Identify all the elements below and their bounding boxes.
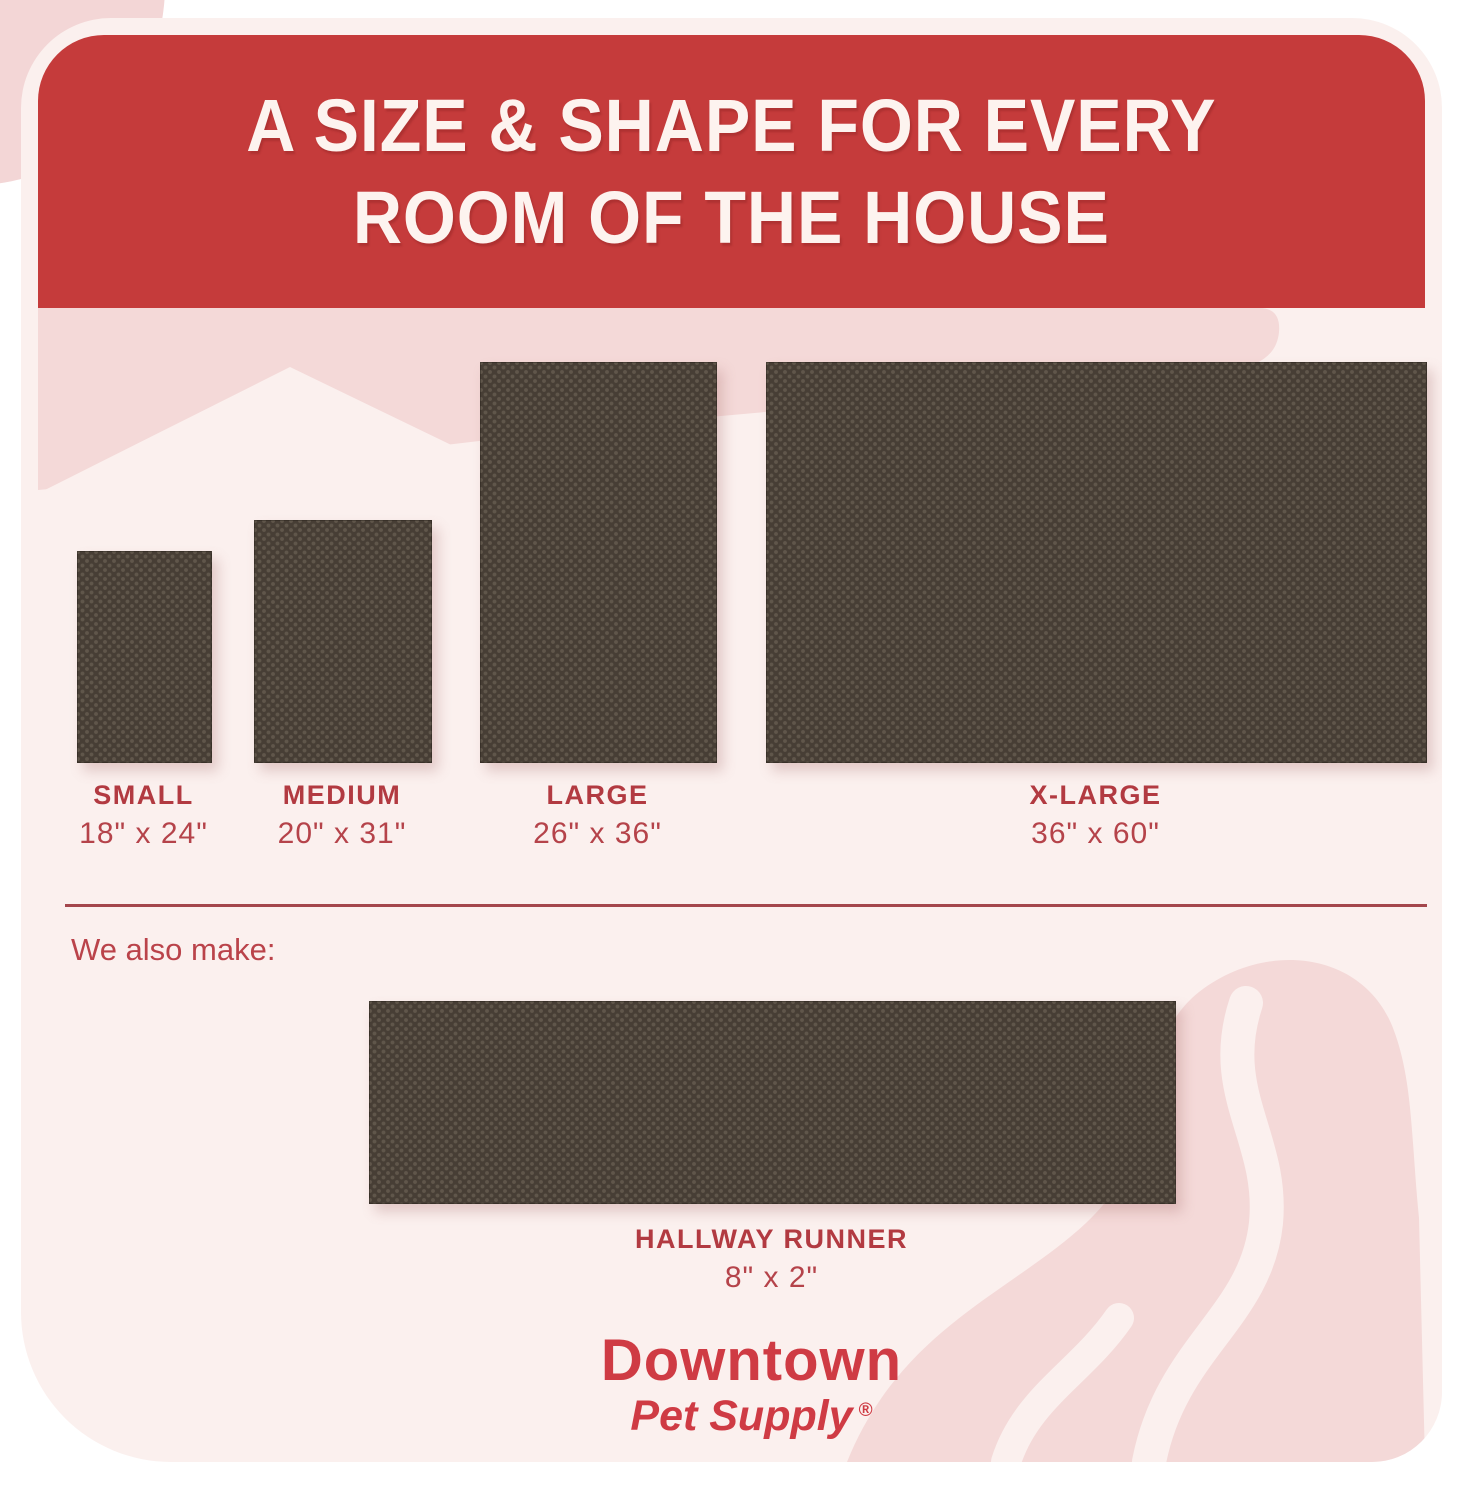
size-dim-large: 26" x 36" <box>460 817 735 851</box>
brand-logo-name: Downtown <box>601 1332 902 1390</box>
infographic-canvas: A SIZE & SHAPE FOR EVERY ROOM OF THE HOU… <box>0 0 1463 1500</box>
size-name-xlarge: X-LARGE <box>766 780 1425 811</box>
size-dim-hallway-runner: 8" x 2" <box>369 1261 1174 1295</box>
page-title-line1: A SIZE & SHAPE FOR EVERY <box>246 84 1216 167</box>
also-make-text: We also make: <box>71 932 275 968</box>
page-title-line2: ROOM OF THE HOUSE <box>353 176 1110 259</box>
registered-trademark-icon: ® <box>859 1400 873 1421</box>
size-label-large: LARGE 26" x 36" <box>460 780 735 851</box>
page-title: A SIZE & SHAPE FOR EVERY ROOM OF THE HOU… <box>246 80 1216 264</box>
mat-swatch-medium <box>254 520 432 763</box>
size-name-large: LARGE <box>460 780 735 811</box>
size-label-hallway-runner: HALLWAY RUNNER 8" x 2" <box>369 1224 1174 1295</box>
size-label-xlarge: X-LARGE 36" x 60" <box>766 780 1425 851</box>
brand-logo-subtitle-text: Pet Supply <box>630 1392 852 1440</box>
size-name-hallway-runner: HALLWAY RUNNER <box>369 1224 1174 1255</box>
size-dim-small: 18" x 24" <box>47 817 240 851</box>
size-dim-xlarge: 36" x 60" <box>766 817 1425 851</box>
mat-swatch-large <box>480 362 717 763</box>
size-name-small: SMALL <box>47 780 240 811</box>
section-divider <box>65 904 1427 907</box>
mat-swatch-small <box>77 551 212 763</box>
size-label-small: SMALL 18" x 24" <box>47 780 240 851</box>
size-name-medium: MEDIUM <box>234 780 450 811</box>
size-label-medium: MEDIUM 20" x 31" <box>234 780 450 851</box>
content-card: A SIZE & SHAPE FOR EVERY ROOM OF THE HOU… <box>21 18 1442 1462</box>
mat-swatch-hallway-runner <box>369 1001 1176 1204</box>
mat-swatch-xlarge <box>766 362 1427 763</box>
brand-logo-subtitle: Pet Supply® <box>601 1392 902 1441</box>
size-dim-medium: 20" x 31" <box>234 817 450 851</box>
title-banner: A SIZE & SHAPE FOR EVERY ROOM OF THE HOU… <box>38 35 1425 308</box>
brand-logo: Downtown Pet Supply® <box>601 1332 902 1441</box>
